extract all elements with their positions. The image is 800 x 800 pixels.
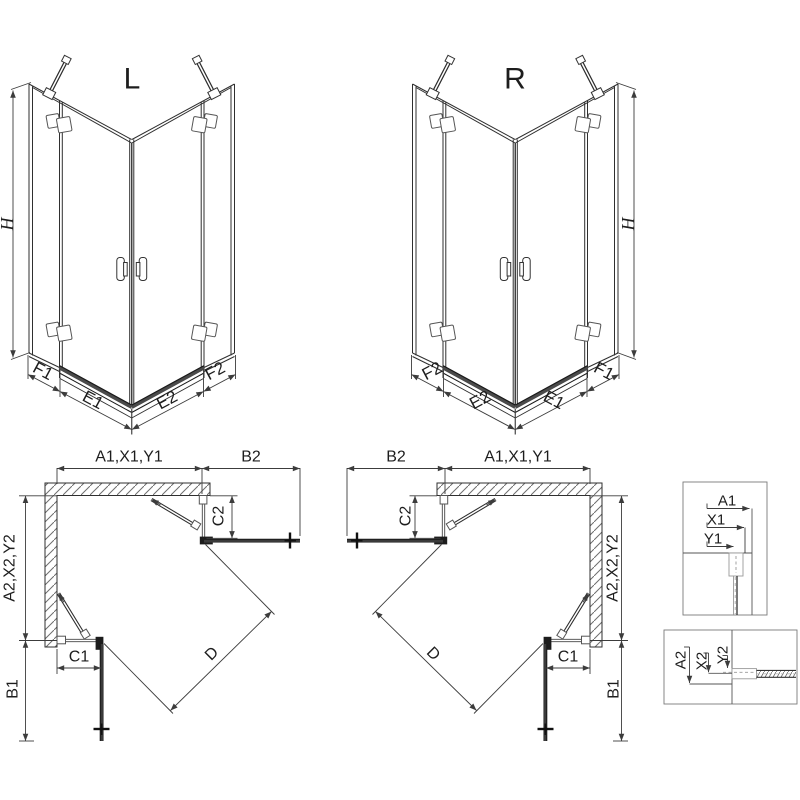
- dim-label-f1-right: F1: [591, 358, 617, 384]
- dim-label-c1-plan-left: C1: [69, 649, 90, 666]
- dim-label-a1x1y1-plan-right: A1,X1,Y1: [484, 449, 552, 466]
- dim-label-b1-plan-left: B1: [5, 679, 22, 699]
- detail-label-x1: X1: [707, 512, 725, 529]
- dim-label-c1-plan-right: C1: [558, 649, 579, 666]
- drawing-canvas: L H F1 E1 E2 F2 R H F2 E2 E1 F1 A1,X1,Y1…: [0, 0, 800, 800]
- detail-label-y2: Y2: [715, 646, 732, 664]
- wall-hatching: [45, 483, 602, 647]
- view-title-left: L: [124, 63, 141, 96]
- dim-label-b2-plan-right: B2: [386, 449, 406, 466]
- dim-label-d-plan-left: D: [202, 644, 222, 664]
- plan-view-right: [347, 468, 628, 741]
- shower-enclosure-dimension-drawing: L H F1 E1 E2 F2 R H F2 E2 E1 F1 A1,X1,Y1…: [0, 0, 800, 800]
- dim-label-b2-plan-left: B2: [241, 449, 261, 466]
- detail-label-a2: A2: [673, 651, 690, 669]
- view-title-right: R: [504, 63, 526, 96]
- dim-label-a2x2y2-plan-right: A2,X2,Y2: [605, 534, 622, 602]
- plan-view-left: [19, 468, 300, 741]
- dim-label-f1-left: F1: [30, 358, 56, 384]
- detail-label-y1: Y1: [704, 531, 722, 548]
- dim-label-height-right: H: [618, 217, 638, 232]
- dim-label-height-left: H: [0, 217, 17, 232]
- dim-label-b1-plan-right: B1: [606, 679, 623, 699]
- detail-label-a1: A1: [718, 493, 736, 510]
- detail-label-x2: X2: [694, 652, 711, 670]
- dim-label-c2-plan-right: C2: [398, 506, 415, 527]
- dim-label-c2-plan-left: C2: [211, 506, 228, 527]
- dim-label-a1x1y1-plan-left: A1,X1,Y1: [95, 449, 163, 466]
- dim-label-a2x2y2-plan-left: A2,X2,Y2: [2, 534, 19, 602]
